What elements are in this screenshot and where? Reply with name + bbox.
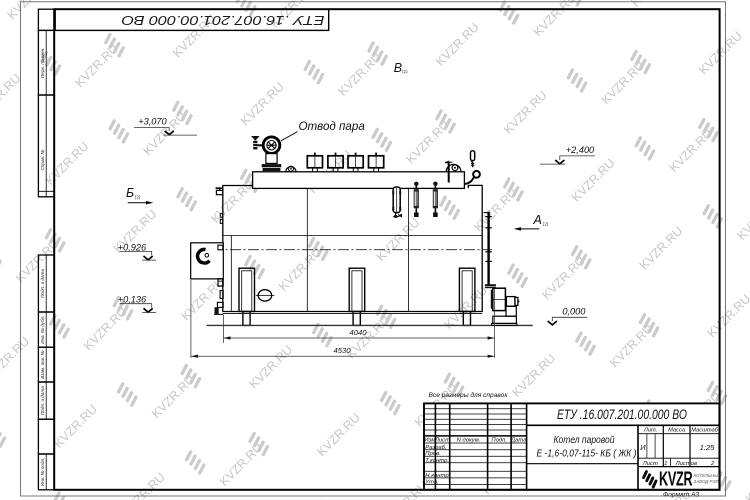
svg-text:(2): (2)	[543, 222, 549, 227]
svg-text:(2): (2)	[402, 69, 408, 74]
svg-text:Утв.: Утв.	[424, 479, 438, 485]
svg-text:+0,136: +0,136	[118, 295, 147, 305]
svg-text:Подп. и дата: Подп. и дата	[40, 386, 45, 415]
svg-text:И: И	[640, 443, 646, 452]
svg-text:Взам. инв. №: Взам. инв. №	[40, 350, 45, 378]
svg-text:Б: Б	[126, 186, 134, 200]
svg-text:0,000: 0,000	[562, 306, 586, 316]
svg-text:+2,400: +2,400	[566, 145, 595, 155]
svg-text:Справ. №: Справ. №	[40, 150, 45, 171]
svg-text:Формат А3: Формат А3	[663, 492, 699, 499]
svg-text:Отвод пара: Отвод пара	[299, 120, 366, 133]
svg-text:(2): (2)	[135, 195, 141, 200]
svg-text:1:25: 1:25	[700, 443, 716, 452]
svg-text:Инв. № подл.: Инв. № подл.	[40, 458, 45, 487]
svg-text:1: 1	[664, 461, 667, 467]
svg-text:Все размеры для справок: Все размеры для справок	[429, 391, 509, 399]
svg-text:Изм: Изм	[424, 438, 435, 444]
svg-text:Котел паровой: Котел паровой	[554, 435, 615, 446]
svg-text:А: А	[533, 213, 542, 227]
svg-text:KVZR: KVZR	[659, 467, 692, 490]
svg-text:ЕТУ .16.007.201.00.000 ВО: ЕТУ .16.007.201.00.000 ВО	[122, 13, 325, 28]
svg-text:Пров.: Пров.	[425, 451, 441, 457]
svg-text:4040: 4040	[350, 328, 368, 337]
svg-text:Разраб.: Разраб.	[425, 445, 446, 451]
svg-text:Лист: Лист	[642, 461, 658, 467]
svg-text:ЕТУ .16.007.201.00.000 ВО: ЕТУ .16.007.201.00.000 ВО	[557, 407, 687, 422]
svg-text:2: 2	[710, 461, 715, 467]
svg-text:Т.контр.: Т.контр.	[425, 458, 449, 464]
svg-text:Подп.: Подп.	[491, 438, 507, 444]
svg-text:+0,926: +0,926	[118, 242, 147, 252]
svg-text:Подп. и дата: Подп. и дата	[40, 269, 45, 298]
svg-text:Лист: Лист	[434, 438, 450, 444]
svg-text:Масштаб: Масштаб	[691, 428, 718, 434]
svg-text:+3,070: +3,070	[138, 117, 167, 127]
svg-text:Перв. примен.: Перв. примен.	[40, 48, 45, 79]
svg-text:Листов: Листов	[675, 461, 697, 467]
svg-text:Лит.: Лит.	[643, 428, 657, 434]
svg-text:Масса: Масса	[668, 428, 685, 434]
svg-text:В: В	[394, 61, 402, 75]
svg-text:Е -1,6-0,07-115- КБ ( ЖК ): Е -1,6-0,07-115- КБ ( ЖК )	[537, 449, 637, 460]
svg-text:ЗАВОД РЭП: ЗАВОД РЭП	[694, 479, 720, 484]
svg-text:КОТЕЛЬНЫЙ: КОТЕЛЬНЫЙ	[694, 473, 722, 478]
svg-text:4530: 4530	[334, 346, 352, 355]
svg-text:N докум.: N докум.	[457, 438, 481, 444]
svg-text:Дата: Дата	[510, 438, 527, 444]
svg-text:Инв. № дубл.: Инв. № дубл.	[40, 315, 45, 343]
svg-text:Н.контр.: Н.контр.	[425, 473, 450, 479]
